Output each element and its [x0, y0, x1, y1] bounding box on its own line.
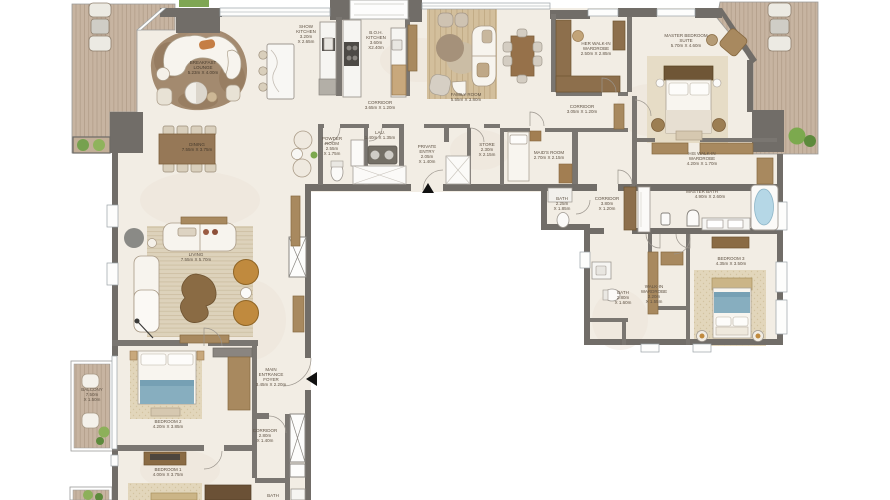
svg-text:HIS WALK-INWARDROBE4.20m X 1.7: HIS WALK-INWARDROBE4.20m X 1.70m — [687, 151, 718, 166]
svg-text:FAMILY ROOM5.55m X 3.80m: FAMILY ROOM5.55m X 3.80m — [451, 92, 482, 102]
svg-text:MAID'S ROOM2.70m X 2.15m: MAID'S ROOM2.70m X 2.15m — [534, 150, 565, 160]
svg-text:CORRIDOR3.65m X 1.20m: CORRIDOR3.65m X 1.20m — [365, 100, 396, 110]
svg-text:CORRIDOR3.05m X 1.20m: CORRIDOR3.05m X 1.20m — [567, 104, 598, 114]
svg-text:HER WALK-INWARDROBE2.50m X 2.8: HER WALK-INWARDROBE2.50m X 2.85m — [581, 41, 612, 56]
svg-text:BEDROOM 24.20m X 3.85m: BEDROOM 24.20m X 3.85m — [153, 419, 184, 429]
svg-text:BEDROOM 14.00m X 3.75m: BEDROOM 14.00m X 3.75m — [153, 467, 184, 477]
svg-text:STORE2.30mX 2.15m: STORE2.30mX 2.15m — [479, 142, 496, 157]
svg-text:BEDROOM 34.35m X 3.50m: BEDROOM 34.35m X 3.50m — [716, 256, 747, 266]
svg-text:BATH: BATH — [267, 493, 279, 498]
